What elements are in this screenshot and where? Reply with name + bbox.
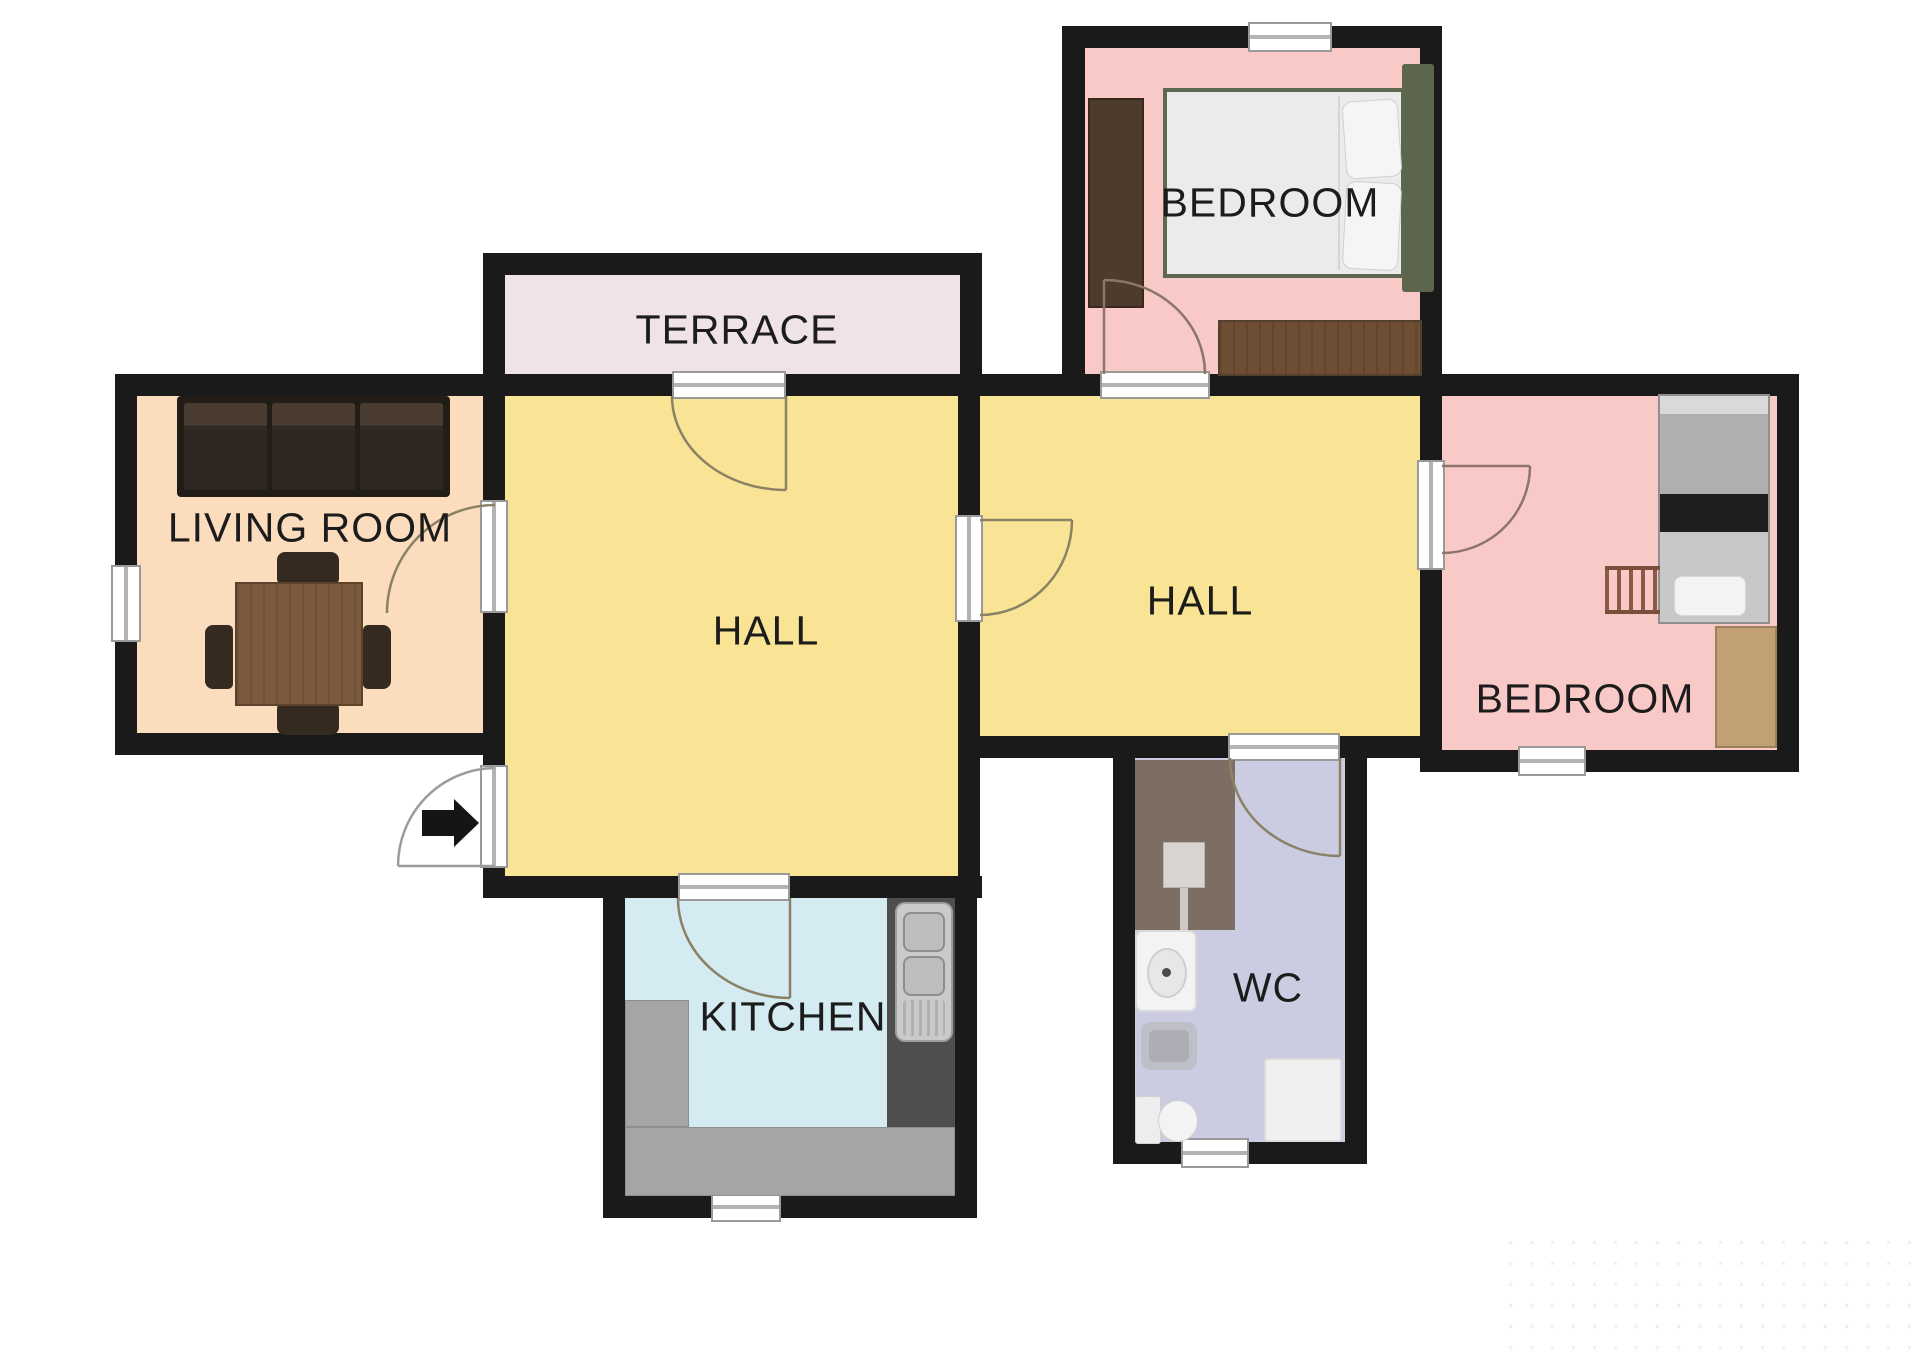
room-label-wc: WC xyxy=(1233,968,1303,1009)
room-label-hall-right: HALL xyxy=(1147,581,1254,622)
door-swing-hall-divider xyxy=(980,520,1072,615)
watermark-pattern xyxy=(1500,1232,1920,1358)
floor-plan: TERRACE LIVING ROOM HALL HALL BEDROOM BE… xyxy=(0,0,1920,1358)
door-swing-kitchen xyxy=(678,898,790,998)
door-swing-bedroom-top xyxy=(1104,280,1205,374)
door-swing-bedroom-right xyxy=(1442,466,1530,553)
room-label-bedroom-top: BEDROOM xyxy=(1161,183,1380,224)
door-swing-terrace xyxy=(672,396,786,490)
room-label-living-room: LIVING ROOM xyxy=(168,508,452,549)
room-label-kitchen: KITCHEN xyxy=(700,997,887,1038)
room-label-bedroom-right: BEDROOM xyxy=(1476,679,1695,720)
room-label-hall-left: HALL xyxy=(713,611,820,652)
door-swing-wc xyxy=(1230,758,1340,856)
entrance-arrow-icon xyxy=(422,799,479,847)
room-label-terrace: TERRACE xyxy=(636,310,839,351)
